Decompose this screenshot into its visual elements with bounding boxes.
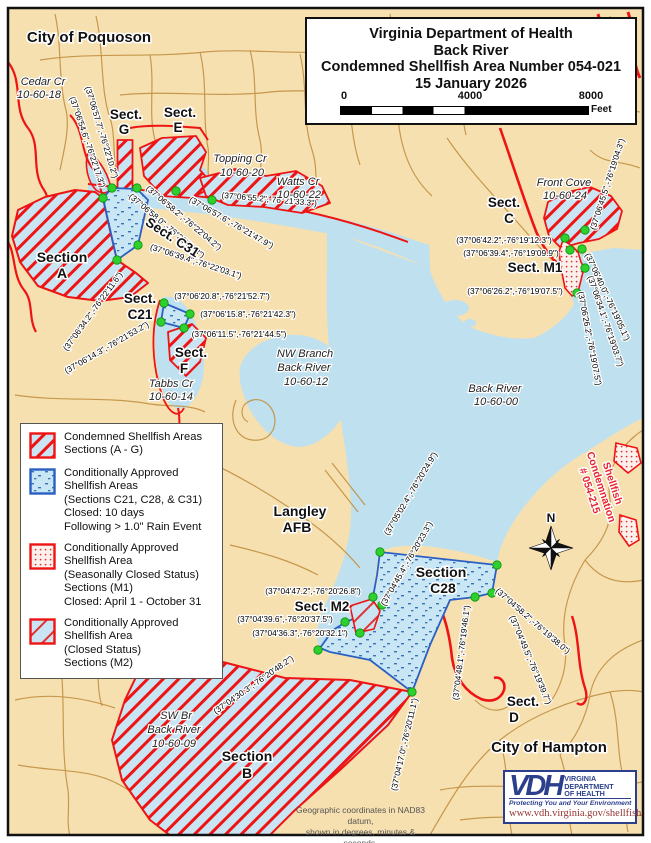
section-label: A [57,265,67,281]
map-sheet: N (37°06'57.7",-76°22'10.2")(37°06'54.6"… [0,0,651,843]
legend-item-text: Conditionally ApprovedShellfish Areas(Se… [64,467,202,534]
waterway-label: Topping Cr [213,153,268,165]
legend-swatch-condemned [29,432,56,459]
map-canvas: N (37°06'57.7",-76°22'10.2")(37°06'54.6"… [0,0,651,843]
waterway-label: 10-60-12 [284,376,328,388]
section-label: Langley [274,503,327,519]
waterway-label: 10-60-18 [17,89,62,101]
waterway-label: Tabbs Cr [149,378,195,390]
waterway-label: Back River [277,362,332,374]
legend-item: Conditionally ApprovedShellfish Areas(Se… [29,467,214,534]
legend-item-text: Condemned Shellfish AreasSections (A - G… [64,431,202,458]
datum-note-line2: shown in degrees, minutes & seconds. [288,827,433,843]
boundary-vertex-dot [493,561,501,569]
scale-bar [340,106,589,115]
boundary-vertex-dot [408,688,416,696]
section-label: Sect. [164,105,196,120]
waterway-label: Cedar Cr [21,76,67,88]
section-label: C28 [430,580,456,596]
section-label: Section [37,249,88,265]
coordinate-label: (37°06'15.8",-76°21'42.3") [200,309,296,319]
waterway-label: SW Br [160,710,193,722]
waterway-label: Watts Cr [277,176,321,188]
section-label: Sect. [175,345,207,360]
coordinate-label: (37°04'36.3",-76°20'32.1") [252,628,348,638]
vdh-tagline: Protecting You and Your Environment [509,798,631,807]
boundary-vertex-dot [180,324,188,332]
legend-item: Conditionally ApprovedShellfish Area(Clo… [29,617,214,671]
boundary-vertex-dot [578,245,586,253]
section-label: D [509,710,519,725]
section-g-area [118,140,133,192]
scale-tick-8000: 8000 [579,90,603,102]
coordinate-label: (37°06'11.5",-76°21'44.5") [192,329,287,339]
scale-tick-0: 0 [341,90,347,102]
scale-bar-group: 0 4000 8000 Feet [307,90,635,124]
map-title-agency: Virginia Department of Health [307,26,635,43]
section-label: Sect. M1 [508,260,563,275]
boundary-vertex-dot [134,241,142,249]
section-label: C21 [128,307,153,322]
legend-swatch-m2 [29,618,56,645]
vdh-acronym: VDH [509,773,561,800]
vdh-org-name: VIRGINIA DEPARTMENT OF HEALTH [564,775,613,798]
section-label: F [180,361,188,376]
boundary-vertex-dot [172,187,180,195]
section-label: Sect. M2 [295,599,350,614]
scale-unit: Feet [591,104,612,115]
waterway-label: 10-60-22 [277,189,321,201]
vdh-org-line: OF HEALTH [564,790,613,798]
waterway-label: Front Cove [537,177,591,189]
waterway-label: 10-60-14 [149,391,193,403]
waterway-label: 10-60-00 [474,396,519,408]
boundary-vertex-dot [561,234,569,242]
boundary-vertex-dot [157,318,165,326]
coordinate-label: (37°04'39.6",-76°20'37.5") [237,614,333,624]
map-title-river: Back River [307,43,635,60]
waterway-label: 10-60-20 [220,167,265,179]
section-label: City of Poquoson [27,29,151,46]
section-label: Section [222,748,273,764]
section-label: C [504,211,514,226]
boundary-vertex-dot [376,548,384,556]
coordinate-label: (37°06'20.8",-76°21'52.7") [174,291,270,301]
scale-tick-4000: 4000 [458,90,482,102]
legend-item-text: Conditionally ApprovedShellfish Area(Sea… [64,542,201,609]
section-label: G [119,122,130,137]
waterway-label: NW Branch [277,348,333,360]
boundary-vertex-dot [356,629,364,637]
legend: Condemned Shellfish AreasSections (A - G… [20,423,223,679]
waterway-label: 10-60-24 [543,190,587,202]
section-label: Sect. [124,291,156,306]
legend-swatch-seasonal [29,543,56,570]
section-label: Sect. [488,195,520,210]
boundary-vertex-dot [314,646,322,654]
section-label: Sect. [507,694,539,709]
vdh-logo: VDH VIRGINIA DEPARTMENT OF HEALTH Protec… [503,770,637,824]
legend-swatch-rain [29,468,56,495]
datum-note: Geographic coordinates in NAD83 datum, s… [288,805,433,843]
boundary-vertex-dot [108,184,116,192]
boundary-vertex-dot [566,246,574,254]
boundary-vertex-dot [186,310,194,318]
legend-item: Conditionally ApprovedShellfish Area(Sea… [29,542,214,609]
boundary-vertex-dot [99,194,107,202]
boundary-vertex-dot [113,256,121,264]
waterway-label: Back River [468,383,523,395]
boundary-vertex-dot [369,593,377,601]
vdh-url: www.vdh.virginia.gov/shellfish [509,808,631,819]
map-title-area-number: Condemned Shellfish Area Number 054-021 [307,59,635,76]
section-label: Sect. [110,107,142,122]
legend-item-text: Conditionally ApprovedShellfish Area(Clo… [64,617,178,671]
coordinate-label: (37°06'39.4",-76°19'09.9") [463,248,559,258]
coordinate-label: (37°04'47.2",-76°20'26.8") [265,586,361,596]
section-label: E [173,120,182,135]
boundary-vertex-dot [341,618,349,626]
section-label: Section [416,564,467,580]
datum-note-line1: Geographic coordinates in NAD83 datum, [288,805,433,827]
boundary-vertex-dot [471,593,479,601]
section-label: AFB [283,519,312,535]
coordinate-label: (37°06'42.2",-76°19'12.3") [456,235,552,245]
section-label: B [242,765,252,781]
boundary-vertex-dot [160,299,168,307]
title-box: Virginia Department of Health Back River… [305,17,637,125]
legend-item: Condemned Shellfish AreasSections (A - G… [29,431,214,459]
section-label: City of Hampton [491,739,607,756]
waterway-label: Back River [147,724,202,736]
compass-n-label: N [547,511,556,525]
coordinate-label: (37°06'26.2",-76°19'07.5") [467,286,563,296]
waterway-label: 10-60-09 [152,738,196,750]
